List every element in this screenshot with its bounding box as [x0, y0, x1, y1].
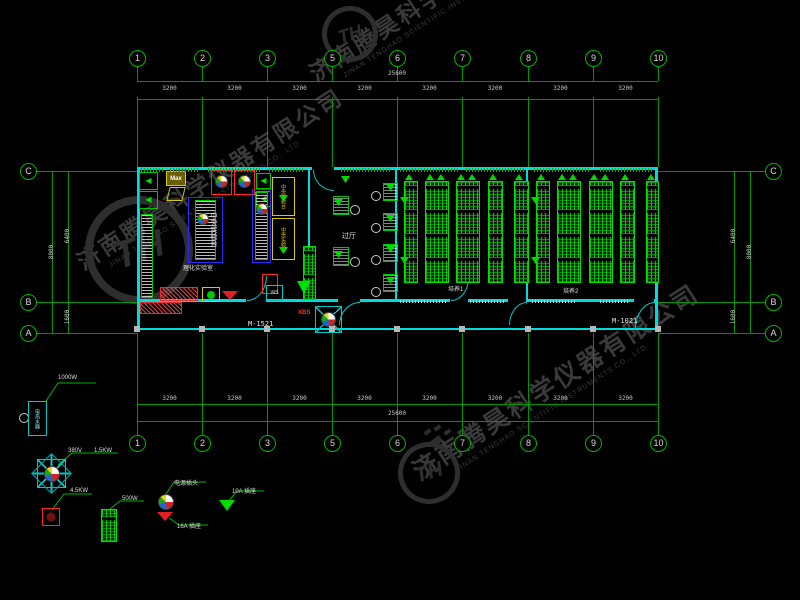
total-dimension: 25600 [377, 70, 417, 78]
dim-line [137, 99, 658, 100]
grid-bubble-stub [528, 421, 529, 435]
plug-label: 电源插头 [174, 478, 198, 487]
grid-bubble-bottom: 8 [520, 435, 537, 452]
hall-label: 过厅 [342, 231, 356, 241]
window-hatch [141, 168, 165, 172]
total-dimension: 25600 [377, 410, 417, 418]
bay-dimension: 3200 [350, 85, 380, 93]
grid-line-vertical [137, 97, 138, 167]
window-hatch [600, 168, 652, 172]
side-dimension: 1600 [64, 302, 72, 332]
grid-line-vertical [332, 333, 333, 421]
door-swing [509, 302, 527, 325]
grid-line-vertical [462, 97, 463, 167]
grid-line-vertical [528, 97, 529, 167]
grid-bubble-left: C [20, 163, 37, 180]
fan-icon [256, 203, 268, 215]
grid-bubble-bottom: 5 [324, 435, 341, 452]
rack-fan-icon [489, 174, 497, 180]
veranda-hatch [140, 302, 182, 314]
central-bench-label: 中央实验台 [208, 212, 218, 247]
bay-dimension: 3200 [155, 85, 185, 93]
grid-bubble-left: A [20, 325, 37, 342]
grid-line-vertical [202, 97, 203, 167]
window-hatch [600, 300, 630, 303]
grid-bubble-stub [137, 66, 138, 81]
grid-bubble-stub [202, 66, 203, 81]
bay-dimension: 3200 [480, 395, 510, 403]
door-swing [635, 302, 655, 329]
door-swing [339, 302, 360, 325]
grid-bubble-bottom: 10 [650, 435, 667, 452]
cultivation-rack [514, 181, 529, 283]
side-dimension: 6400 [64, 221, 72, 251]
wall-post [394, 326, 400, 332]
paw-mark-icon [443, 428, 451, 435]
window-hatch [534, 168, 590, 172]
grid-bubble-top: 7 [454, 50, 471, 67]
grid-line-vertical [462, 333, 463, 421]
fan-voltage-label: 380V [68, 448, 82, 454]
ws-closet: WS [266, 285, 283, 301]
grid-bubble-top: 3 [259, 50, 276, 67]
grid-line-horizontal [658, 333, 765, 334]
window-hatch [532, 300, 576, 303]
window-hatch [208, 168, 260, 172]
wall-post [459, 326, 465, 332]
door-label: M-1021 [612, 317, 637, 325]
window-hatch [470, 300, 504, 303]
cultivation-rack [425, 181, 449, 283]
stool-circle [371, 287, 381, 297]
room-label: 培养2 [563, 286, 578, 295]
grid-bubble-stub [462, 421, 463, 435]
cultivation-rack [646, 181, 659, 283]
grid-line-vertical [397, 333, 398, 421]
bay-dimension: 3200 [415, 395, 445, 403]
cultivation-rack [620, 181, 635, 283]
rack-500w-symbol [101, 509, 117, 542]
stool-circle [371, 255, 381, 265]
grid-line-vertical [593, 97, 594, 167]
bay-dimension: 3200 [480, 85, 510, 93]
grid-bubble-right: C [765, 163, 782, 180]
grid-bubble-stub [528, 66, 529, 81]
socket16-label: 16A 插座 [177, 521, 201, 530]
fan-icon [238, 175, 251, 188]
bay-dimension: 3200 [546, 395, 576, 403]
rack-power-label: 500W [122, 496, 138, 502]
paw-mark-icon [423, 428, 431, 435]
grid-line-horizontal [658, 171, 765, 172]
side-dimension: 8000 [48, 237, 56, 267]
xbs-label: XBS [298, 310, 310, 316]
grid-line-vertical [593, 333, 594, 421]
wall-post [329, 326, 335, 332]
bay-dimension: 3200 [415, 85, 445, 93]
stool-circle [350, 257, 360, 267]
cultivation-rack [488, 181, 503, 283]
side-dimension: 8000 [746, 237, 754, 267]
rack-fan-icon [601, 174, 609, 180]
wall-post [590, 326, 596, 332]
grid-bubble-stub [462, 66, 463, 81]
grid-line-vertical [528, 333, 529, 421]
rack-fan-icon [405, 174, 413, 180]
wash-unit [333, 196, 349, 215]
rack-fan-icon [515, 174, 523, 180]
grid-bubble-stub [397, 421, 398, 435]
rack-fan-icon [558, 174, 566, 180]
grid-line-vertical [658, 333, 659, 421]
grid-bubble-bottom: 6 [389, 435, 406, 452]
door-label: M-1521 [248, 320, 273, 328]
wall-post [134, 326, 140, 332]
grid-bubble-top: 10 [650, 50, 667, 67]
side-bench [141, 214, 153, 298]
room-label: 培养1 [448, 284, 463, 293]
eyewash-unit-icon: ◀ [139, 191, 158, 209]
door-swing [313, 170, 334, 191]
rack-fan-icon [647, 174, 655, 180]
grid-bubble-bottom: 7 [454, 435, 471, 452]
grid-bubble-bottom: 9 [585, 435, 602, 452]
cultivation-rack [404, 181, 418, 283]
power-plug-symbol [158, 494, 174, 510]
bay-dimension: 3200 [285, 85, 315, 93]
grid-bubble-top: 6 [389, 50, 406, 67]
grid-bubble-stub [593, 421, 594, 435]
rack-fan-icon [569, 174, 577, 180]
window-hatch [269, 168, 305, 172]
grid-bubble-top: 5 [324, 50, 341, 67]
rack-fan-icon [621, 174, 629, 180]
cultivation-rack [557, 181, 581, 283]
heater-power-label: 1000W [58, 375, 77, 381]
dim-line [137, 81, 658, 82]
grid-bubble-top: 2 [194, 50, 211, 67]
grid-bubble-right: A [765, 325, 782, 342]
grid-bubble-stub [267, 66, 268, 81]
unit-power-label: 4.5KW [70, 488, 88, 494]
cultivation-rack [589, 181, 613, 283]
max-cabinet: Max [166, 171, 186, 186]
fan-power-label: 1.5KW [94, 448, 112, 454]
machine-unit [202, 287, 220, 302]
rack-fan-icon [426, 174, 434, 180]
stool-circle [350, 205, 360, 215]
bay-dimension: 3200 [350, 395, 380, 403]
wall-post [655, 326, 661, 332]
cultivation-rack [536, 181, 550, 283]
speaker-icon [341, 176, 350, 183]
eyewash-unit-icon: ◀ [139, 172, 158, 190]
hood-duct-icon [166, 187, 185, 201]
window-hatch [400, 300, 446, 303]
machine-dot-icon [207, 291, 215, 299]
grid-line-horizontal [658, 302, 765, 303]
room-label: 理化实验室 [183, 263, 213, 272]
rack-fan-icon [590, 174, 598, 180]
wall-post [525, 326, 531, 332]
paw-mark-icon [433, 424, 441, 431]
bottom-equipment [160, 287, 198, 301]
stool-circle [371, 191, 381, 201]
cultivation-rack [456, 181, 480, 283]
grid-bubble-stub [332, 66, 333, 81]
rack-fan-icon [437, 174, 445, 180]
grid-line-vertical [397, 97, 398, 167]
rack-fan-icon [468, 174, 476, 180]
grid-bubble-stub [658, 66, 659, 81]
stool-circle [371, 223, 381, 233]
fan-icon [44, 466, 60, 482]
grid-bubble-top: 1 [129, 50, 146, 67]
grid-bubble-right: B [765, 294, 782, 311]
side-dimension: 1600 [730, 302, 738, 332]
rack-fan-icon [457, 174, 465, 180]
fan-icon [321, 312, 336, 327]
side-dimension: 6400 [730, 221, 738, 251]
cad-drawing-canvas: 济南腾昊科学仪器有限公司 JINAN TENGHAO SCIENTIFIC IN… [0, 0, 800, 600]
grid-bubble-top: 8 [520, 50, 537, 67]
heater-4-5kw-symbol [42, 508, 60, 526]
window-hatch [341, 168, 391, 172]
water-heater-symbol: 电热水器 [28, 401, 47, 436]
bay-dimension: 3200 [611, 395, 641, 403]
grid-bubble-left: B [20, 294, 37, 311]
grid-line-vertical [658, 97, 659, 167]
window-hatch [400, 168, 458, 172]
grid-bubble-top: 9 [585, 50, 602, 67]
window-hatch [170, 168, 200, 172]
wash-unit [333, 247, 349, 266]
socket10-label: 10A 插座 [232, 486, 256, 495]
window-hatch [466, 168, 524, 172]
bay-dimension: 3200 [546, 85, 576, 93]
grid-line-vertical [267, 97, 268, 167]
grid-bubble-stub [593, 66, 594, 81]
fan-icon [215, 175, 228, 188]
rack-fan-icon [537, 174, 545, 180]
grid-line-vertical [332, 97, 333, 167]
bay-dimension: 3200 [611, 85, 641, 93]
grid-line-horizontal [36, 333, 137, 334]
wall-post [199, 326, 205, 332]
eyewash-unit-icon: ◀ [256, 173, 271, 189]
grid-bubble-stub [658, 421, 659, 435]
grid-bubble-stub [332, 421, 333, 435]
bay-dimension: 3200 [220, 85, 250, 93]
